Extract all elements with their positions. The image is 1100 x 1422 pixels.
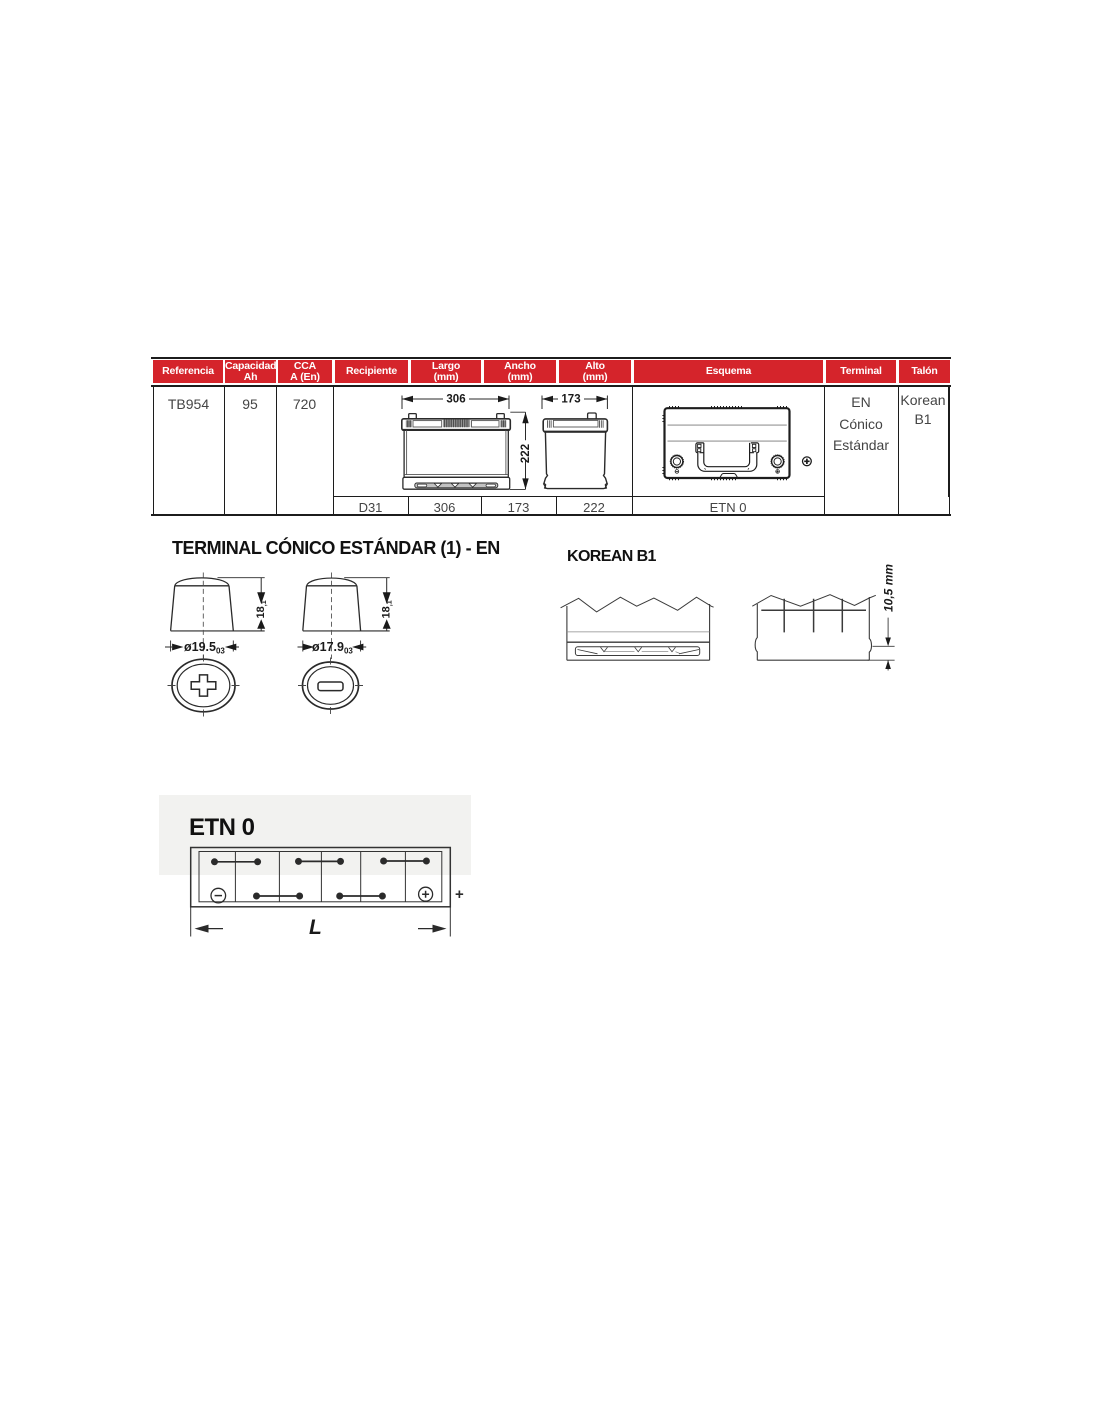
svg-text:222: 222	[520, 444, 532, 463]
svg-text:10,5 mm: 10,5 mm	[882, 564, 896, 612]
svg-text:173: 173	[561, 394, 580, 406]
svg-text:18,1: 18,1	[381, 600, 394, 618]
svg-text:ø19.503: ø19.503	[184, 640, 225, 656]
svg-text:ø17.903: ø17.903	[312, 640, 353, 656]
svg-text:L: L	[309, 916, 322, 939]
svg-text:18,1: 18,1	[255, 600, 268, 618]
svg-text:306: 306	[446, 394, 465, 406]
svg-text:+: +	[455, 886, 464, 903]
